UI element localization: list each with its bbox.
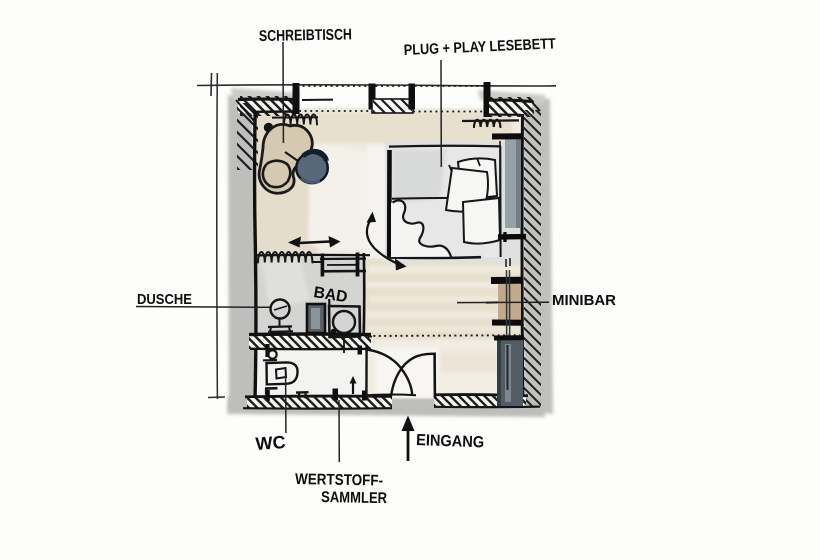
svg-text:SAMMLER: SAMMLER	[321, 489, 387, 507]
svg-text:PLUG + PLAY LESEBETT: PLUG + PLAY LESEBETT	[403, 35, 556, 59]
svg-text:WERTSTOFF-: WERTSTOFF-	[295, 471, 383, 490]
svg-text:MINIBAR: MINIBAR	[552, 292, 616, 309]
svg-text:EINGANG: EINGANG	[416, 432, 485, 451]
svg-text:WC: WC	[255, 432, 286, 454]
svg-text:SCHREIBTISCH: SCHREIBTISCH	[259, 26, 352, 45]
svg-text:DUSCHE: DUSCHE	[137, 291, 192, 308]
